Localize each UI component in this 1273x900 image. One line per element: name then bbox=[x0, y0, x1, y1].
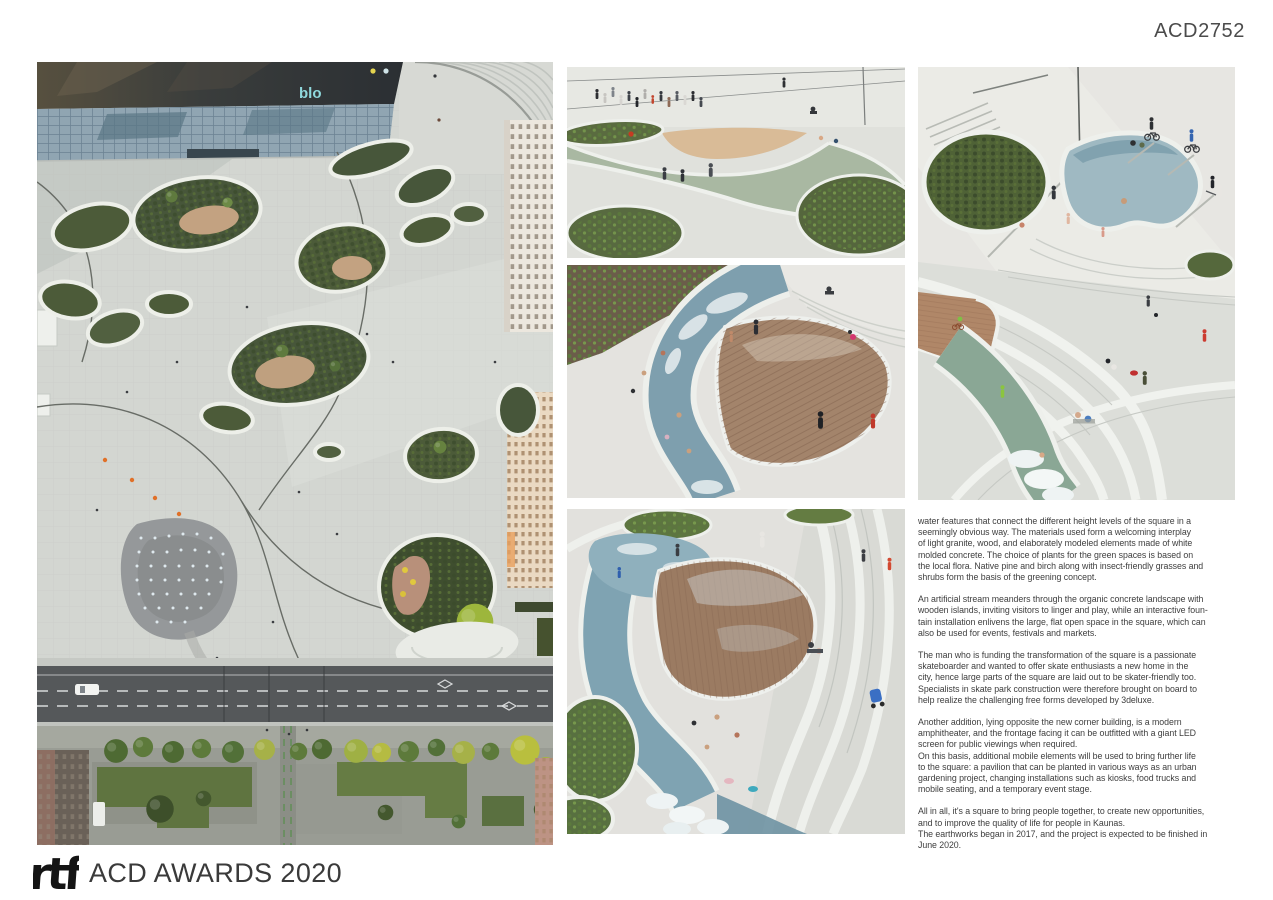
description-paragraph: The man who is funding the transformatio… bbox=[918, 650, 1242, 706]
footer: rtf ACD AWARDS 2020 bbox=[33, 849, 342, 897]
office-building: blo bbox=[37, 62, 403, 161]
planting-mound bbox=[924, 132, 1048, 232]
photo-pond-terraces bbox=[918, 67, 1235, 500]
car bbox=[75, 684, 99, 695]
photo-aerial-masterplan: blo bbox=[37, 62, 553, 845]
award-board-page: { "header": { "submission_id": "ACD2752"… bbox=[0, 0, 1273, 900]
rtf-logo-text: rtf bbox=[33, 849, 79, 897]
roof-sign-text: blo bbox=[299, 85, 322, 102]
photo-stream-deck-wide bbox=[567, 509, 905, 834]
awards-title: ACD AWARDS 2020 bbox=[89, 858, 342, 889]
street bbox=[37, 658, 553, 726]
submission-id: ACD2752 bbox=[1154, 20, 1245, 43]
rtf-logo: rtf bbox=[33, 849, 79, 897]
wooden-deck bbox=[655, 559, 816, 698]
parked-van bbox=[93, 802, 105, 826]
streetscape bbox=[37, 726, 553, 845]
description-paragraph: water features that connect the differen… bbox=[918, 516, 1242, 583]
project-description: water features that connect the differen… bbox=[918, 516, 1242, 862]
description-paragraph: Another addition, lying opposite the new… bbox=[918, 717, 1242, 795]
pond bbox=[1062, 133, 1201, 229]
corner-building bbox=[37, 750, 89, 845]
residential-building-upper bbox=[504, 120, 553, 332]
photo-plaza-channel bbox=[567, 67, 905, 258]
corner-building-right bbox=[535, 758, 553, 845]
description-paragraph: All in all, it's a square to bring peopl… bbox=[918, 806, 1242, 851]
photo-stream-deck-aerial bbox=[567, 265, 905, 498]
description-paragraph: An artificial stream meanders through th… bbox=[918, 594, 1242, 639]
